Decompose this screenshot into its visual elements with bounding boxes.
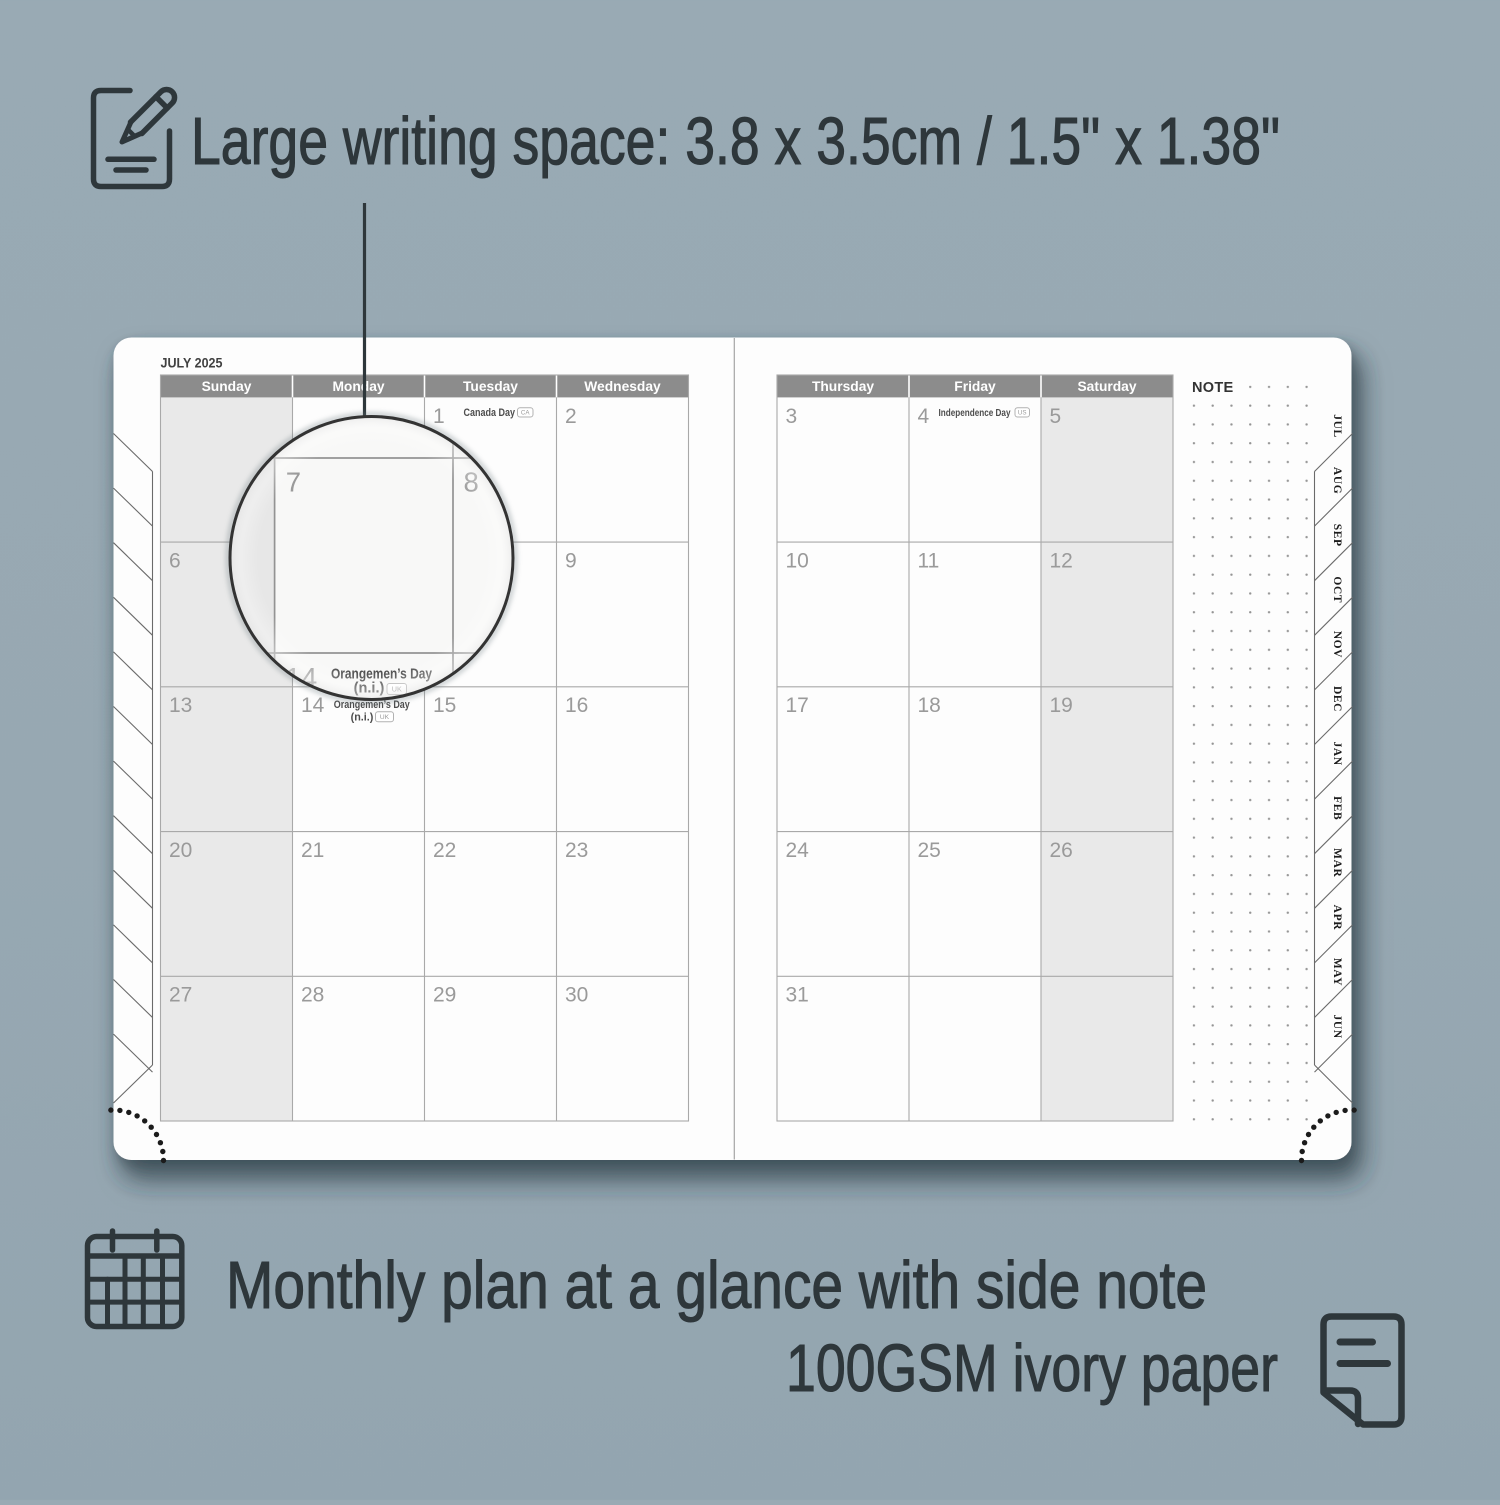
svg-text:30: 30 bbox=[565, 984, 588, 1007]
svg-text:AUG: AUG bbox=[1331, 467, 1343, 494]
svg-text:6: 6 bbox=[169, 550, 181, 573]
svg-text:DEC: DEC bbox=[1331, 686, 1343, 712]
svg-text:28: 28 bbox=[301, 984, 324, 1007]
svg-text:MAY: MAY bbox=[1331, 958, 1343, 986]
svg-text:JAN: JAN bbox=[1331, 742, 1343, 766]
svg-text:22: 22 bbox=[433, 839, 456, 862]
svg-text:2: 2 bbox=[565, 405, 577, 428]
svg-text:9: 9 bbox=[565, 550, 577, 573]
svg-text:Tuesday: Tuesday bbox=[463, 379, 518, 394]
svg-text:100GSM ivory paper: 100GSM ivory paper bbox=[786, 1331, 1278, 1406]
svg-text:JUN: JUN bbox=[1331, 1015, 1343, 1039]
svg-text:14: 14 bbox=[301, 694, 325, 717]
svg-text:27: 27 bbox=[169, 984, 192, 1007]
svg-text:Monday: Monday bbox=[332, 379, 384, 394]
svg-text:NOTE: NOTE bbox=[1192, 380, 1234, 396]
svg-text:5: 5 bbox=[1050, 405, 1062, 428]
svg-text:3: 3 bbox=[786, 405, 798, 428]
svg-text:UK: UK bbox=[380, 714, 390, 721]
svg-text:MAR: MAR bbox=[1331, 848, 1343, 877]
svg-text:15: 15 bbox=[433, 694, 456, 717]
svg-text:FEB: FEB bbox=[1331, 796, 1343, 820]
svg-text:12: 12 bbox=[1050, 550, 1073, 573]
svg-text:SEP: SEP bbox=[1331, 524, 1343, 547]
svg-text:Large writing space: 3.8 x 3.5: Large writing space: 3.8 x 3.5cm / 1.5" … bbox=[191, 104, 1280, 179]
svg-text:APR: APR bbox=[1331, 905, 1343, 931]
svg-text:1: 1 bbox=[433, 405, 445, 428]
svg-text:Independence Day: Independence Day bbox=[939, 408, 1011, 419]
svg-text:29: 29 bbox=[433, 984, 456, 1007]
svg-text:25: 25 bbox=[918, 839, 941, 862]
svg-text:Wednesday: Wednesday bbox=[584, 379, 661, 394]
svg-text:Monthly plan at a glance with: Monthly plan at a glance with side note bbox=[226, 1248, 1207, 1323]
svg-text:Sunday: Sunday bbox=[202, 379, 252, 394]
svg-text:Thursday: Thursday bbox=[812, 379, 874, 394]
svg-text:10: 10 bbox=[786, 550, 809, 573]
svg-text:26: 26 bbox=[1050, 839, 1073, 862]
svg-text:CA: CA bbox=[521, 410, 530, 417]
svg-text:31: 31 bbox=[786, 984, 809, 1007]
svg-text:11: 11 bbox=[918, 550, 940, 573]
svg-text:JUL: JUL bbox=[1331, 414, 1343, 438]
svg-text:16: 16 bbox=[565, 694, 588, 717]
svg-text:Saturday: Saturday bbox=[1077, 379, 1136, 394]
svg-text:Friday: Friday bbox=[954, 379, 996, 394]
svg-text:23: 23 bbox=[565, 839, 588, 862]
svg-text:(n.i.): (n.i.) bbox=[351, 712, 374, 724]
svg-text:20: 20 bbox=[169, 839, 192, 862]
svg-text:24: 24 bbox=[786, 839, 810, 862]
svg-text:21: 21 bbox=[301, 839, 324, 862]
svg-text:JULY 2025: JULY 2025 bbox=[161, 355, 223, 371]
svg-text:NOV: NOV bbox=[1331, 631, 1343, 658]
svg-text:Canada Day: Canada Day bbox=[464, 407, 516, 419]
svg-text:17: 17 bbox=[786, 694, 809, 717]
svg-text:OCT: OCT bbox=[1331, 576, 1343, 603]
svg-text:19: 19 bbox=[1050, 694, 1073, 717]
svg-text:US: US bbox=[1018, 410, 1027, 417]
svg-text:13: 13 bbox=[169, 694, 192, 717]
svg-text:4: 4 bbox=[918, 405, 930, 428]
svg-text:18: 18 bbox=[918, 694, 941, 717]
